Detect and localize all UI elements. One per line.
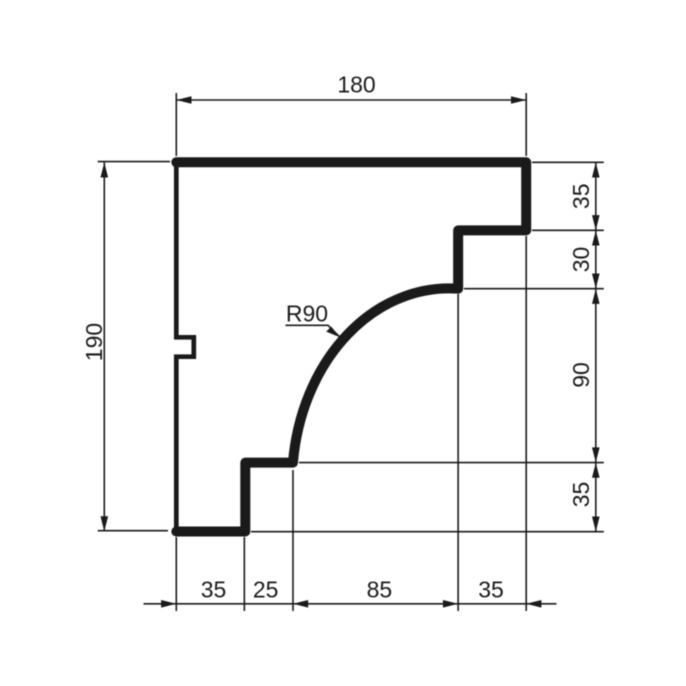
svg-text:30: 30 xyxy=(568,247,594,273)
svg-text:35: 35 xyxy=(568,482,594,508)
svg-text:90: 90 xyxy=(568,362,594,388)
svg-text:35: 35 xyxy=(201,577,227,603)
svg-text:180: 180 xyxy=(337,72,375,98)
svg-text:85: 85 xyxy=(367,577,393,603)
svg-text:R90: R90 xyxy=(286,301,328,327)
svg-text:35: 35 xyxy=(568,184,594,210)
svg-text:25: 25 xyxy=(253,577,279,603)
svg-text:190: 190 xyxy=(81,323,107,361)
svg-text:35: 35 xyxy=(478,577,504,603)
